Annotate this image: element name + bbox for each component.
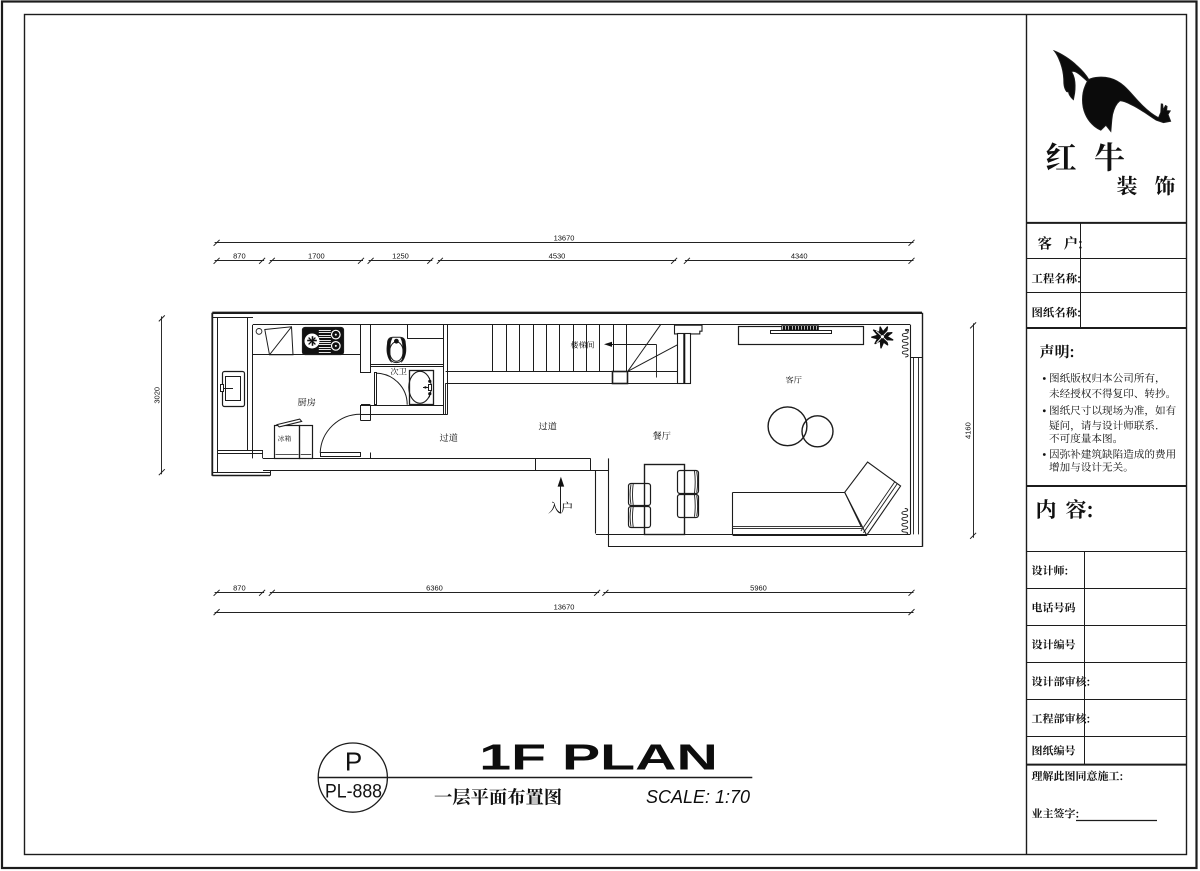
svg-text:5960: 5960: [750, 583, 767, 592]
svg-text:SCALE: 1:70: SCALE: 1:70: [646, 787, 750, 807]
svg-text:13670: 13670: [554, 603, 575, 612]
svg-text:870: 870: [233, 583, 246, 592]
svg-text:13670: 13670: [554, 233, 575, 242]
svg-text:4530: 4530: [549, 251, 566, 260]
svg-text:870: 870: [233, 251, 246, 260]
svg-text:3020: 3020: [152, 387, 161, 404]
svg-text:1F PLAN: 1F PLAN: [479, 737, 718, 778]
svg-text:1700: 1700: [308, 251, 325, 260]
svg-text:4340: 4340: [791, 251, 808, 260]
svg-text:1250: 1250: [392, 251, 409, 260]
svg-text:6360: 6360: [426, 583, 443, 592]
svg-text:P: P: [345, 747, 362, 777]
svg-text:PL-888: PL-888: [325, 782, 382, 803]
svg-text:4160: 4160: [964, 422, 973, 439]
